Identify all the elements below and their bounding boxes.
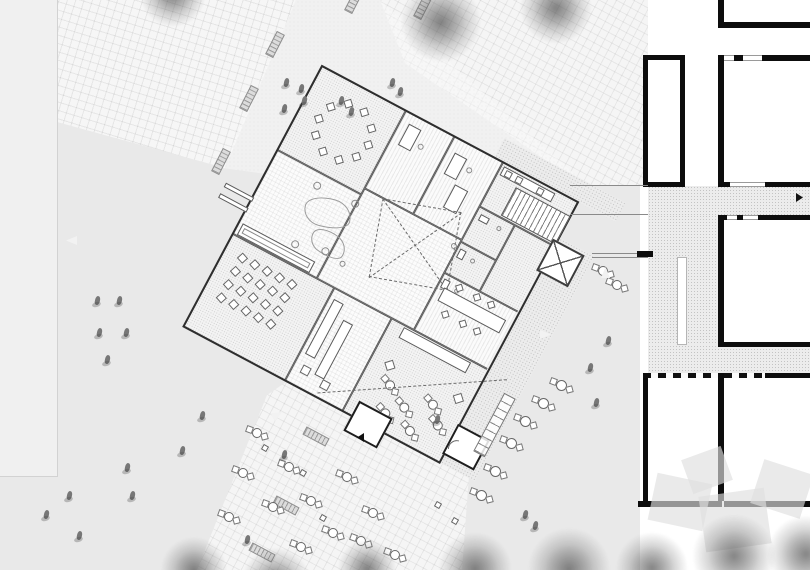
terrace-table xyxy=(328,528,338,538)
walkway-table xyxy=(612,280,622,290)
person-figure xyxy=(64,491,73,502)
walkway-table xyxy=(490,466,501,477)
tree-canopy xyxy=(385,0,497,78)
connector-edge-line xyxy=(570,214,648,215)
person-figure xyxy=(41,510,50,521)
terrace-table xyxy=(342,472,352,482)
person-figure xyxy=(432,415,441,426)
loose-chair xyxy=(299,469,307,477)
wall-stub xyxy=(637,251,653,257)
person-figure xyxy=(127,491,136,502)
bench xyxy=(265,31,285,58)
walkway-table xyxy=(556,380,567,391)
bench xyxy=(239,85,259,112)
loose-chair xyxy=(319,514,327,522)
person-figure xyxy=(177,446,186,457)
terrace-table xyxy=(238,468,248,478)
direction-arrow xyxy=(357,433,364,442)
bench xyxy=(344,0,364,14)
loose-chair xyxy=(434,501,442,509)
tree-canopy xyxy=(506,0,606,58)
person-figure xyxy=(74,531,83,542)
entry-marker-triangle xyxy=(540,330,551,339)
tree-canopy xyxy=(127,0,219,40)
direction-arrow xyxy=(796,193,803,202)
walkway-table xyxy=(520,416,531,427)
person-figure xyxy=(281,78,290,89)
person-figure xyxy=(92,296,101,307)
person-figure xyxy=(279,104,288,115)
person-figure xyxy=(395,87,404,98)
walkway-table xyxy=(538,398,549,409)
tree-canopy xyxy=(424,518,526,570)
entry-marker-triangle xyxy=(66,236,77,245)
person-figure xyxy=(299,96,308,107)
architectural-site-plan xyxy=(0,0,810,570)
terrace-table xyxy=(368,508,378,518)
person-figure xyxy=(296,84,305,95)
person-figure xyxy=(591,398,600,409)
person-figure xyxy=(346,107,355,118)
bench xyxy=(211,148,231,175)
terrace-table xyxy=(306,496,316,506)
person-figure xyxy=(585,363,594,374)
person-figure xyxy=(121,328,130,339)
terrace-table xyxy=(224,512,234,522)
walkway-table xyxy=(506,438,517,449)
entry-marker-triangle xyxy=(270,408,284,421)
court-wall-line xyxy=(592,257,648,258)
person-figure xyxy=(94,328,103,339)
connector-edge-line xyxy=(570,185,648,186)
person-figure xyxy=(336,96,345,107)
terrace-table xyxy=(268,502,278,512)
loose-chair xyxy=(261,444,269,452)
person-figure xyxy=(520,510,529,521)
person-figure xyxy=(279,450,288,461)
person-figure xyxy=(114,296,123,307)
terrace-table xyxy=(284,462,294,472)
bench xyxy=(302,426,329,446)
terrace-table xyxy=(252,428,262,438)
person-figure xyxy=(122,463,131,474)
walkway-table xyxy=(476,490,487,501)
site-elements-layer xyxy=(0,0,810,570)
person-figure xyxy=(197,411,206,422)
person-figure xyxy=(603,336,612,347)
tree-canopy xyxy=(148,524,240,570)
person-figure xyxy=(102,355,111,366)
